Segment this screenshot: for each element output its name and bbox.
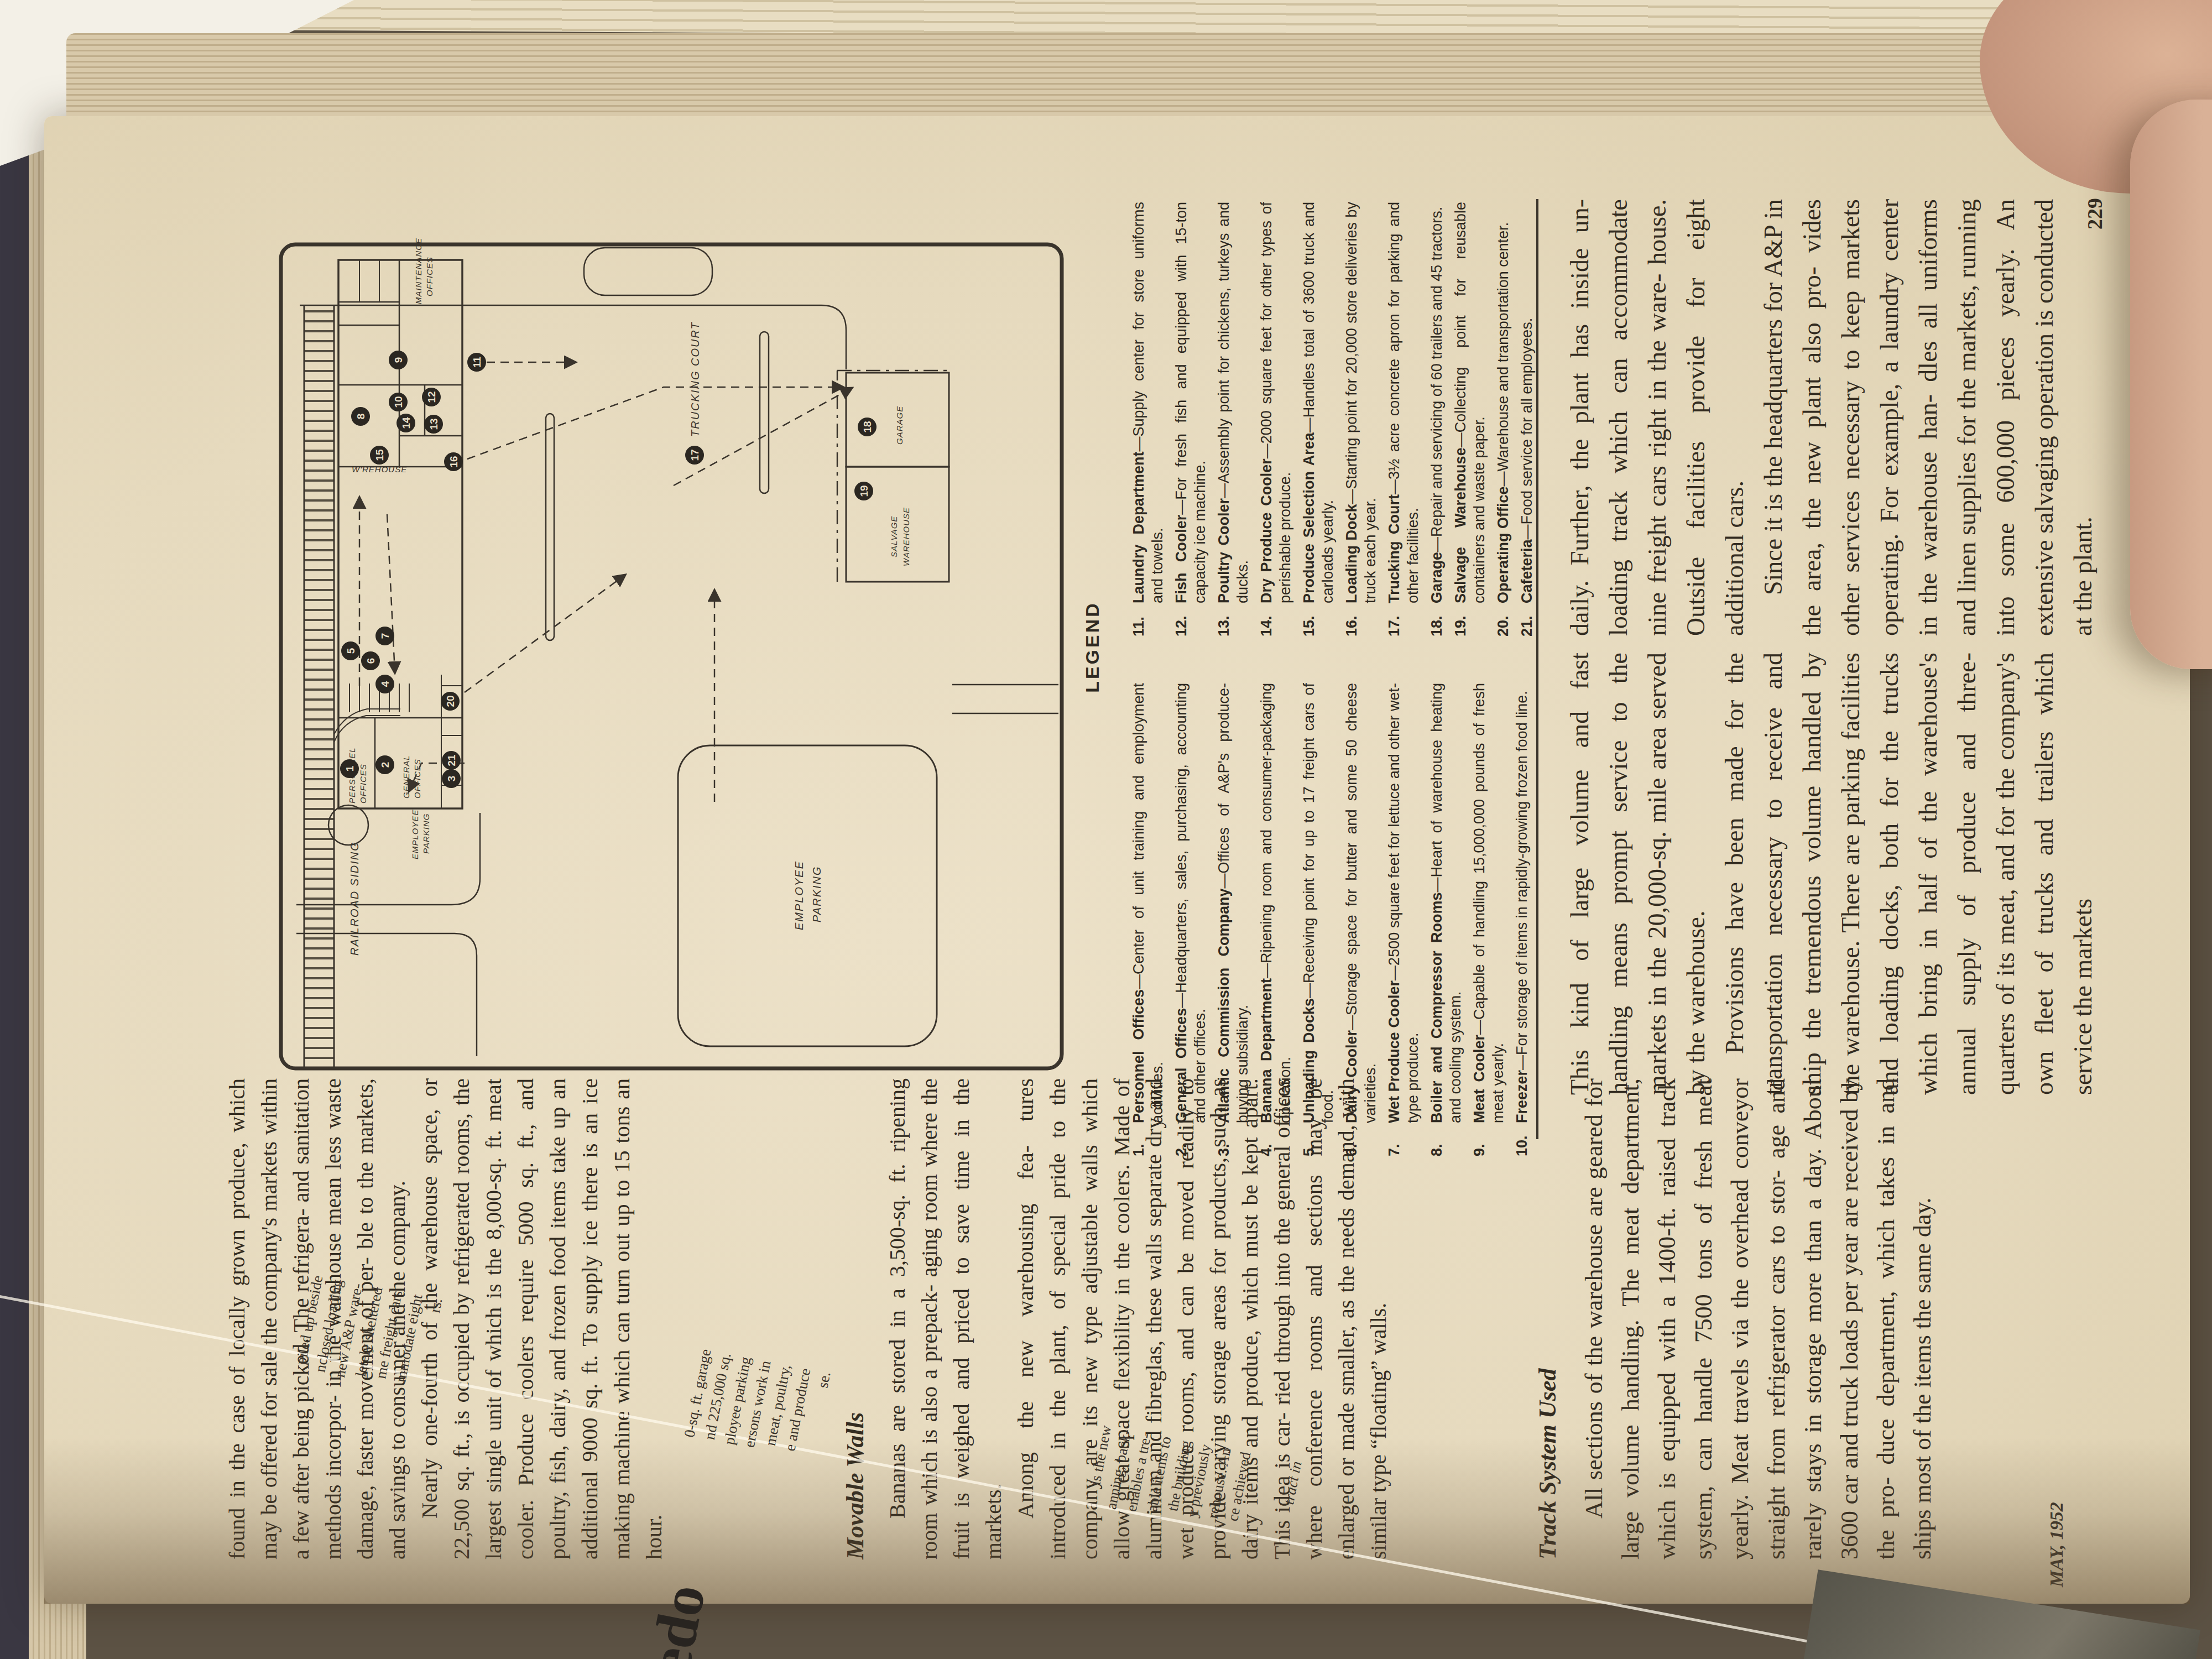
legend-column-right: 11.Laundry Department—Supply center for … [1129,202,1541,639]
legend-item: 2.General Offices—Headquarters, sales, p… [1172,683,1209,1159]
svg-text:13: 13 [428,418,440,430]
employee-parking-lot [678,745,937,1046]
legend-item: 1.Personnel Offices—Center of unit train… [1129,683,1167,1159]
svg-text:21: 21 [446,754,457,766]
page-number: 229 [2083,198,2107,229]
legend-item: 16.Loading Dock—Starting point for 20,00… [1342,202,1380,639]
svg-text:14: 14 [400,417,412,429]
legend-item: 18.Garage—Repair and servicing of 60 tra… [1427,202,1446,639]
svg-text:18: 18 [862,421,873,432]
diagram-number-circles: 123456789101112131415161718192021 [340,351,877,788]
legend-item: 3.Atlantic Commission Company—Offices of… [1214,683,1252,1159]
svg-text:11: 11 [471,357,483,368]
legend-item: 9.Meat Cooler—Capable of handling 15,000… [1470,683,1507,1159]
paragraph: daily. Further, the plant has inside un-… [1561,199,1754,636]
warehouse-building [338,260,462,808]
flow-arrow [387,514,395,672]
paragraph: Since it is the headquarters for A&P in … [1754,199,2103,636]
legend-item: 15.Produce Selection Area—Handles total … [1300,202,1337,639]
legend-item: 21.Cafeteria—Food service for all employ… [1517,202,1536,639]
garage-label: GARAGE [895,406,904,445]
legend-item: 5.Unloading Docks—Receiving point for up… [1300,683,1337,1159]
legend-column-left: 1.Personnel Offices—Center of unit train… [1129,683,1536,1159]
svg-text:2: 2 [379,762,391,768]
legend-item: 17.Trucking Court—3½ acre concrete apron… [1385,202,1422,639]
svg-text:OFFICES: OFFICES [425,257,434,296]
svg-text:1: 1 [344,765,356,771]
court-lane-island [546,414,554,640]
paragraph: This kind of large volume and fast handl… [1561,653,1715,1095]
legend-item: 14.Dry Produce Cooler—2000 square feet f… [1257,202,1295,639]
legend-item: 8.Boiler and Compressor Rooms—Heart of w… [1427,683,1465,1159]
legend-item: 11.Laundry Department—Supply center for … [1129,202,1167,639]
svg-text:3: 3 [446,776,457,782]
svg-text:PARKING: PARKING [811,865,823,922]
rail-spur [334,716,400,742]
paragraph: Provisions have been made for the transp… [1715,653,2103,1095]
maintenance-offices-label: MAINTENANCE [414,238,423,304]
svg-text:7: 7 [379,633,391,639]
salvage-warehouse-label: SALVAGE [889,516,899,557]
svg-text:OFFICES: OFFICES [358,764,368,804]
svg-text:8: 8 [355,414,367,420]
svg-text:17: 17 [689,449,701,461]
svg-text:5: 5 [345,648,357,654]
svg-text:20: 20 [445,695,456,707]
trucking-court-label: TRUCKING COURT [689,321,701,437]
legend-item: 6.Dairy Cooler—Storage space for butter … [1342,683,1380,1159]
finger [2130,100,2212,669]
legend-item: 7.Wet Produce Cooler—2500 square feet fo… [1385,683,1422,1159]
street-curb-right [300,305,846,369]
svg-text:10: 10 [393,396,404,408]
street-island-right [584,248,712,295]
underlying-page-edges [66,33,2190,116]
legend-item: 10.Freezer—For storage of items in rapid… [1512,683,1531,1159]
photo-of-magazine-page: { "page": { "number": "229", "footer_dat… [0,0,2212,1659]
svg-text:19: 19 [858,485,870,497]
svg-text:15: 15 [374,449,385,461]
legend-item: 13.Poultry Cooler—Assembly point for chi… [1214,202,1252,639]
middle-column: This kind of large volume and fast handl… [1561,653,2103,1095]
flow-arrow [465,575,625,692]
right-column: daily. Further, the plant has inside un-… [1561,199,2103,636]
court-lane-island [760,332,769,493]
legend-item: 12.Fish Cooler—For fresh fish and equipp… [1172,202,1209,639]
employee-parking-small-label: EMPLOYEE [410,809,420,859]
legend-title: LEGEND [1082,553,1103,741]
entrance-drive [952,685,1058,713]
svg-text:6: 6 [365,658,377,664]
svg-text:PARKING: PARKING [421,813,431,854]
general-offices-label: GENERAL [401,755,411,799]
employee-parking-label: EMPLOYEE [793,860,805,930]
legend-item: 20.Operating Office—Warehouse and transp… [1494,202,1512,639]
legend-item: 19.Salvage Warehouse—Collecting point fo… [1451,202,1489,639]
legend-item: 4.Banana Department—Ripening room and co… [1257,683,1295,1159]
svg-text:WAREHOUSE: WAREHOUSE [901,507,911,566]
railroad-track [304,305,334,1067]
svg-text:9: 9 [393,357,404,363]
svg-text:16: 16 [448,456,460,467]
legend-divider-rule [1536,199,1538,1139]
warehouse-floor-plan: RAILROAD SIDING PERSONNEL OFFICES GENERA… [276,210,1067,1073]
railroad-siding-label: RAILROAD SIDING [348,841,361,956]
svg-text:4: 4 [379,681,391,687]
svg-text:12: 12 [426,391,437,403]
